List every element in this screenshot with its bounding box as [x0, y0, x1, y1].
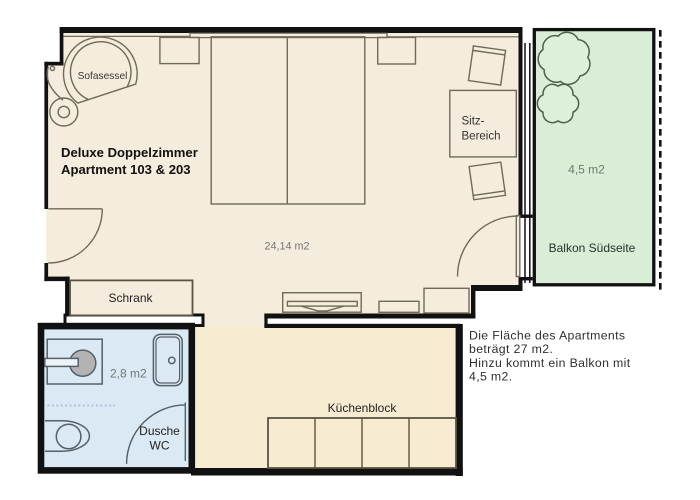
svg-text:Apartment 103 & 203: Apartment 103 & 203 [61, 162, 191, 177]
svg-text:WC: WC [150, 439, 170, 453]
svg-text:24,14 m2: 24,14 m2 [264, 241, 309, 253]
svg-text:Küchenblock: Küchenblock [328, 401, 398, 415]
svg-text:2,8 m2: 2,8 m2 [110, 367, 147, 381]
svg-text:4,5 m2: 4,5 m2 [568, 163, 605, 177]
svg-text:Deluxe Doppelzimmer: Deluxe Doppelzimmer [61, 145, 198, 160]
svg-text:Balkon Südseite: Balkon Südseite [549, 241, 636, 255]
svg-text:Sofasessel: Sofasessel [78, 71, 128, 82]
svg-text:Sitz-: Sitz- [462, 115, 485, 127]
svg-text:4,5 m2.: 4,5 m2. [469, 370, 512, 384]
svg-text:Die Fläche des Apartments: Die Fläche des Apartments [469, 329, 625, 343]
svg-text:beträgt 27 m2.: beträgt 27 m2. [469, 342, 553, 356]
svg-text:Schrank: Schrank [108, 291, 153, 305]
svg-text:Dusche: Dusche [139, 424, 180, 438]
svg-text:Bereich: Bereich [462, 130, 501, 142]
svg-text:Hinzu kommt ein Balkon mit: Hinzu kommt ein Balkon mit [469, 356, 631, 370]
